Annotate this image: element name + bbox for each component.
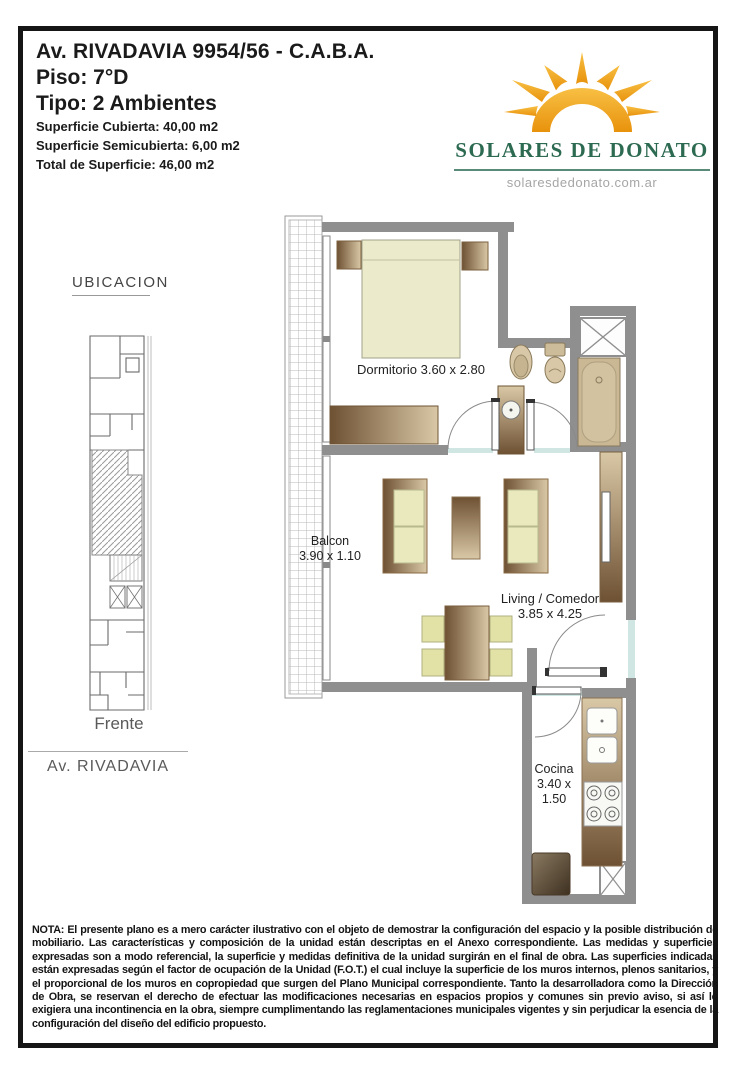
unit-type-label: Tipo: 2 Ambientes <box>36 92 217 116</box>
toilet <box>545 343 565 383</box>
bed <box>362 240 460 358</box>
plan-sheet: Av. RIVADAVIA 9954/56 - C.A.B.A. Piso: 7… <box>0 0 748 1080</box>
living-label: Living / Comedor 3.85 x 4.25 <box>469 591 631 621</box>
tv-screen <box>602 492 610 562</box>
balcon-dims: 3.90 x 1.10 <box>282 549 378 564</box>
sliding-door <box>323 236 330 680</box>
kitchen-door <box>532 686 581 737</box>
surface-semicovered: Superficie Semicubierta: 6,00 m2 <box>36 138 240 153</box>
street-label: Av. RIVADAVIA <box>28 758 188 776</box>
elevator-shafts <box>110 586 142 608</box>
living-name: Living / Comedor <box>469 591 631 606</box>
brand-logo: SOLARES DE DONATO solaresdedonato.com.ar <box>448 50 716 190</box>
sofa <box>383 479 427 573</box>
refrigerator <box>532 853 570 895</box>
floor-plan: Dormitorio 3.60 x 2.80 Balcon 3.90 x 1.1… <box>282 210 640 910</box>
living-dims: 3.85 x 4.25 <box>469 606 631 621</box>
ubicacion-heading: UBICACION <box>72 274 169 291</box>
front-label: Frente <box>64 714 174 734</box>
cocina-name: Cocina <box>524 762 584 777</box>
bathroom-door <box>526 399 577 450</box>
balcon-name: Balcon <box>282 534 378 549</box>
street-divider <box>28 751 188 752</box>
bedroom-door <box>448 398 500 450</box>
bathtub <box>578 358 620 446</box>
stove <box>584 782 622 826</box>
ubicacion-underline <box>72 295 150 296</box>
site-mini-plan <box>78 320 170 718</box>
page-title: Av. RIVADAVIA 9954/56 - C.A.B.A. <box>36 40 375 64</box>
cocina-dims-1: 3.40 x <box>524 777 584 792</box>
brand-name: SOLARES DE DONATO <box>455 138 708 163</box>
sofa <box>504 479 548 573</box>
cocina-dims-2: 1.50 <box>524 792 584 807</box>
unit-location-hatch <box>92 450 142 555</box>
legal-note: NOTA: El presente plano es a mero caráct… <box>32 924 718 1031</box>
nightstand <box>462 242 488 270</box>
cocina-label: Cocina 3.40 x 1.50 <box>524 762 584 807</box>
sun-icon <box>502 50 662 136</box>
brand-website: solaresdedonato.com.ar <box>507 175 657 190</box>
dormitorio-label: Dormitorio 3.60 x 2.80 <box>321 362 521 377</box>
balcon-label: Balcon 3.90 x 1.10 <box>282 534 378 564</box>
coffee-table <box>452 497 480 559</box>
brand-underline <box>454 169 710 171</box>
washbasin-vanity <box>498 386 524 454</box>
stairs <box>110 555 142 581</box>
surface-total: Total de Superficie: 46,00 m2 <box>36 157 214 172</box>
balcony <box>285 216 322 698</box>
surface-covered: Superficie Cubierta: 40,00 m2 <box>36 119 218 134</box>
floor-label: Piso: 7°D <box>36 66 128 90</box>
nightstand <box>337 241 361 269</box>
wardrobe <box>330 406 438 444</box>
entrance-door <box>545 615 607 677</box>
